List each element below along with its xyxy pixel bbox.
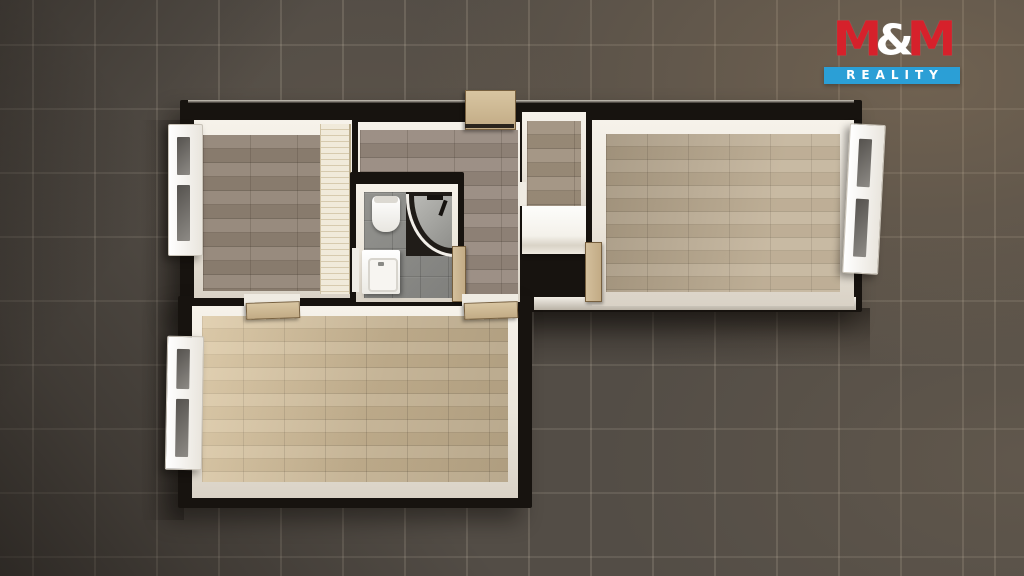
closet-door-opening [518,182,526,206]
living-room-light [606,134,840,292]
white-cabinet [522,206,586,254]
window-bedroom-left [168,124,203,256]
logo-mm-text: M&M [824,17,960,64]
toilet-tank [374,196,398,203]
living-room-door-open [585,242,602,302]
logo-ampersand: & [875,16,908,65]
door-leaf-left [246,301,301,320]
mm-reality-logo: M&M REALITY [824,16,960,88]
washbasin-faucet [378,262,384,266]
top-wall-highlight [188,100,854,103]
wardrobe [320,124,351,294]
logo-reality-banner: REALITY [824,67,960,84]
bathroom-radiator [352,248,359,292]
apartment-render: M&M REALITY [0,0,1024,576]
entrance-threshold [465,124,514,128]
room-bottom-light [202,316,508,482]
window-room-bottom [165,336,204,471]
door-leaf-right [464,301,519,320]
closet-floor [527,121,581,207]
building-cast-shadow [534,308,870,370]
shower-fixture [427,195,443,200]
bedroom-left-floor [203,135,321,291]
